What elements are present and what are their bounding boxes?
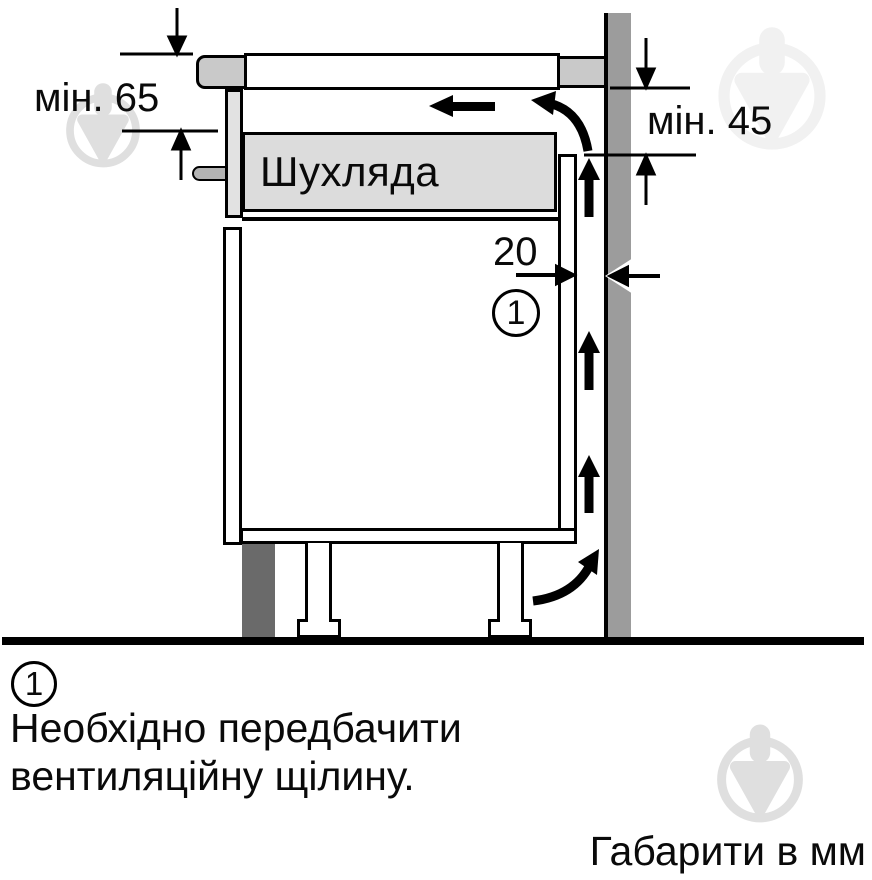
cabinet-leg-right (497, 543, 524, 622)
kitchen-wall (604, 13, 631, 638)
airflow-up-arrow-icon (578, 455, 600, 513)
hob-housing-side (225, 89, 243, 218)
airflow-up-arrow-icon (578, 331, 600, 390)
dim-65-arrow-up-icon (173, 131, 189, 180)
airflow-up-arrow-icon (578, 158, 600, 217)
note-text-line2: вентиляційну щілину. (10, 756, 415, 797)
dim-45-arrow-down-icon (638, 38, 654, 87)
watermark-pin-icon (692, 8, 852, 184)
callout-1-marker: 1 (492, 289, 540, 337)
drawer-label: Шухляда (245, 151, 439, 193)
cabinet-plinth (242, 544, 275, 638)
cabinet-leg-left (305, 543, 332, 622)
hob-right-trim (556, 56, 608, 88)
airflow-left-arrow-icon (429, 95, 495, 117)
mounting-bracket (192, 166, 228, 181)
cabinet-back-panel (558, 154, 577, 531)
callout-1-number: 1 (507, 294, 526, 333)
legend-callout-1-number: 1 (25, 665, 43, 703)
cabinet-bottom-panel (240, 528, 577, 544)
floor-line (2, 637, 864, 645)
cabinet-top-rail (242, 217, 558, 221)
hob-left-trim (196, 55, 248, 89)
drawer-box: Шухляда (242, 132, 557, 212)
dim-65-arrow-down-icon (169, 8, 185, 54)
installation-diagram: Шухляда 1 1 мін. 65 мін. 45 20 Необхідно… (0, 0, 872, 880)
cabinet-left-side (223, 227, 242, 545)
airflow-bottom-curve-arrow-icon (533, 549, 599, 601)
dimension-min-45-label: мін. 45 (647, 101, 772, 141)
units-caption: Габарити в мм (590, 831, 866, 872)
note-text-line1: Необхідно передбачити (10, 708, 462, 749)
dim-45-arrow-up-icon (638, 156, 654, 205)
worktop (244, 53, 560, 90)
legend-callout-1-marker: 1 (11, 661, 57, 707)
dimension-20-label: 20 (493, 232, 538, 272)
dimension-min-65-label: мін. 65 (34, 78, 159, 118)
